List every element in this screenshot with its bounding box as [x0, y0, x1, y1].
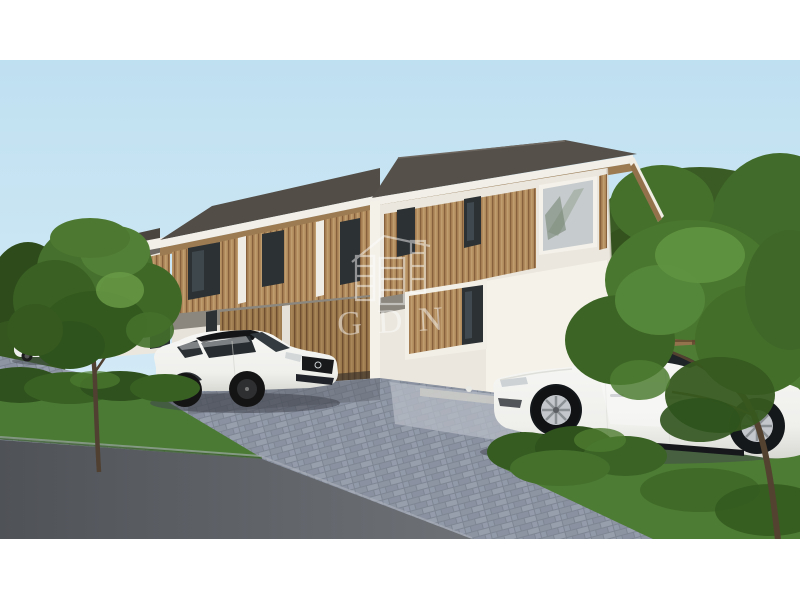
- rendering-scene: GDN: [0, 0, 800, 600]
- letterbox-top: [0, 0, 800, 60]
- pebble: [466, 386, 472, 392]
- watermark-text: GDN: [336, 300, 459, 343]
- rendering-photo: GDN: [0, 0, 800, 600]
- letterbox-bottom: [0, 539, 800, 600]
- corner-window: [539, 176, 597, 255]
